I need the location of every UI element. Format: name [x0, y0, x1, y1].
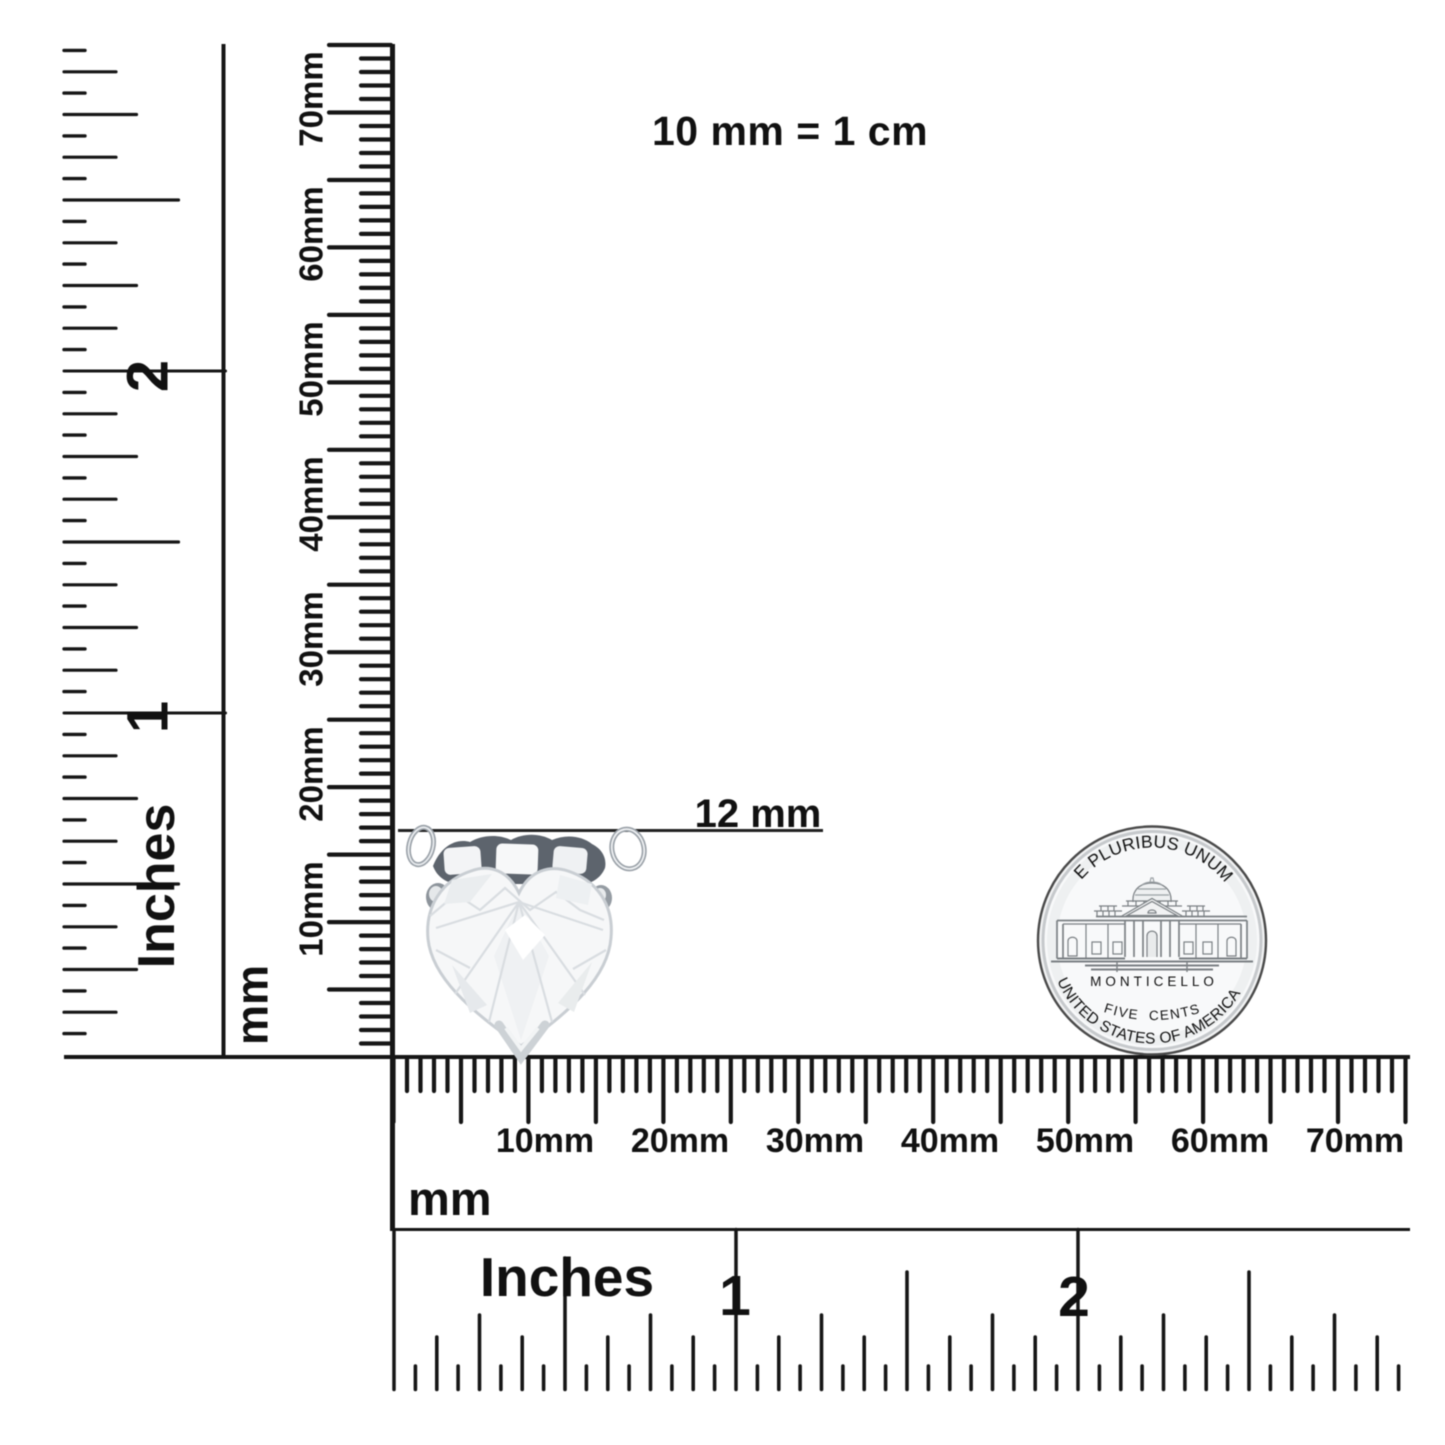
svg-text:1: 1: [719, 1264, 751, 1328]
svg-text:2: 2: [116, 360, 181, 392]
svg-text:mm: mm: [227, 965, 278, 1045]
svg-text:50mm: 50mm: [1036, 1122, 1134, 1160]
svg-text:40mm: 40mm: [901, 1122, 999, 1160]
svg-text:10mm: 10mm: [496, 1122, 594, 1160]
svg-text:1: 1: [116, 701, 181, 733]
svg-text:30mm: 30mm: [766, 1122, 864, 1160]
svg-text:70mm: 70mm: [293, 51, 330, 146]
svg-text:10 mm = 1 cm: 10 mm = 1 cm: [652, 108, 928, 154]
svg-text:10mm: 10mm: [293, 861, 330, 956]
svg-text:60mm: 60mm: [293, 186, 330, 281]
svg-text:2: 2: [1058, 1265, 1090, 1329]
svg-text:70mm: 70mm: [1306, 1122, 1404, 1160]
svg-text:30mm: 30mm: [293, 591, 330, 686]
svg-text:mm: mm: [408, 1172, 492, 1225]
svg-text:20mm: 20mm: [631, 1122, 729, 1160]
svg-text:20mm: 20mm: [293, 726, 330, 821]
svg-text:12 mm: 12 mm: [695, 792, 822, 836]
svg-text:60mm: 60mm: [1171, 1122, 1269, 1160]
svg-text:Inches: Inches: [128, 804, 186, 969]
svg-text:MONTICELLO: MONTICELLO: [1090, 974, 1218, 989]
svg-text:40mm: 40mm: [293, 456, 330, 551]
svg-text:Inches: Inches: [480, 1246, 654, 1308]
svg-text:50mm: 50mm: [293, 321, 330, 416]
